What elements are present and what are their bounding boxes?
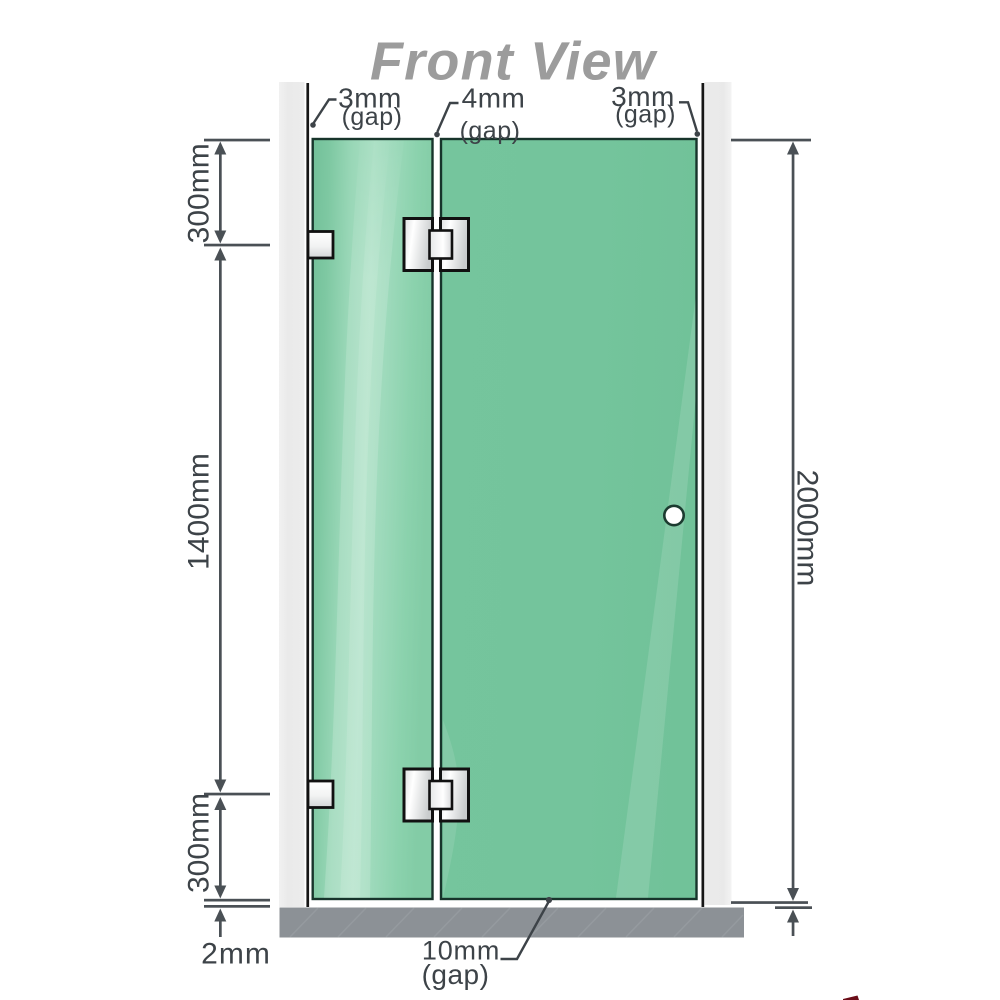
svg-text:2000mm: 2000mm <box>791 470 824 587</box>
svg-text:300mm: 300mm <box>183 143 216 243</box>
svg-text:1400mm: 1400mm <box>183 453 216 570</box>
svg-text:2mm: 2mm <box>201 938 271 971</box>
svg-text:(gap): (gap) <box>422 959 490 990</box>
svg-text:(gap): (gap) <box>615 101 676 129</box>
svg-text:4mm: 4mm <box>462 83 526 114</box>
svg-text:(gap): (gap) <box>342 103 403 131</box>
svg-text:300mm: 300mm <box>183 793 216 893</box>
svg-text:(gap): (gap) <box>460 117 521 145</box>
